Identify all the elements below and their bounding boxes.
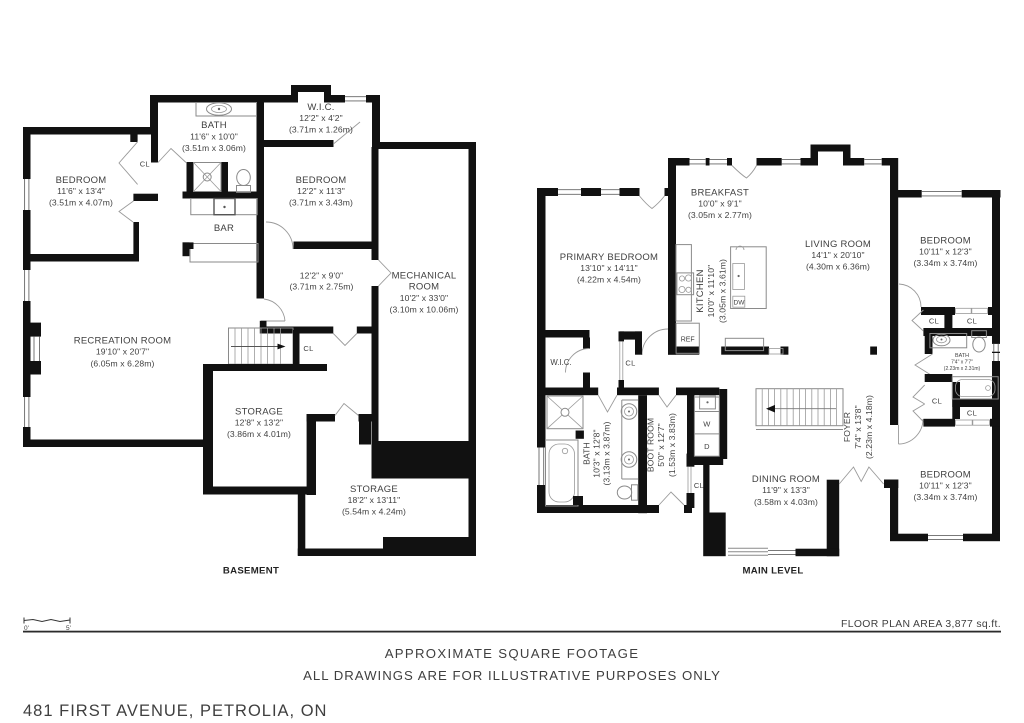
svg-text:10'11" x 12'3": 10'11" x 12'3"	[919, 247, 972, 257]
svg-text:7'4" x 7'7": 7'4" x 7'7"	[951, 360, 973, 366]
svg-text:PRIMARY BEDROOM: PRIMARY BEDROOM	[560, 252, 658, 263]
svg-text:BATH: BATH	[201, 120, 227, 131]
svg-text:STORAGE: STORAGE	[350, 484, 398, 495]
svg-text:(4.30m x 6.36m): (4.30m x 6.36m)	[806, 262, 870, 272]
svg-text:W: W	[703, 420, 711, 429]
svg-text:(3.58m x 4.03m): (3.58m x 4.03m)	[754, 497, 818, 507]
svg-text:481 FIRST AVENUE, PETROLIA, ON: 481 FIRST AVENUE, PETROLIA, ON	[23, 702, 327, 720]
svg-text:BAR: BAR	[214, 223, 234, 234]
svg-text:CL: CL	[303, 344, 313, 353]
svg-text:(4.22m x 4.54m): (4.22m x 4.54m)	[577, 275, 641, 285]
svg-text:19'10" x 20'7": 19'10" x 20'7"	[96, 347, 149, 357]
svg-text:CL: CL	[967, 409, 977, 418]
svg-text:BASEMENT: BASEMENT	[223, 566, 279, 577]
svg-text:MECHANICAL: MECHANICAL	[392, 271, 457, 282]
svg-text:(3.05m x 2.77m): (3.05m x 2.77m)	[688, 210, 752, 220]
svg-text:10'3" x 12'8": 10'3" x 12'8"	[592, 429, 602, 477]
svg-text:10'2" x 33'0": 10'2" x 33'0"	[400, 293, 448, 303]
svg-text:(3.13m x 3.87m): (3.13m x 3.87m)	[602, 421, 612, 485]
svg-text:DINING ROOM: DINING ROOM	[752, 474, 820, 485]
svg-text:RECREATION ROOM: RECREATION ROOM	[74, 336, 172, 347]
svg-text:7'4" x 13'8": 7'4" x 13'8"	[853, 405, 863, 449]
svg-text:ALL DRAWINGS ARE FOR ILLUSTRAT: ALL DRAWINGS ARE FOR ILLUSTRATIVE PURPOS…	[303, 668, 721, 683]
svg-text:10'0" x 11'10": 10'0" x 11'10"	[706, 265, 716, 318]
svg-text:12'8" x 13'2": 12'8" x 13'2"	[235, 418, 283, 428]
svg-text:BEDROOM: BEDROOM	[920, 236, 971, 247]
svg-text:BOOT ROOM: BOOT ROOM	[646, 418, 656, 472]
svg-text:KITCHEN: KITCHEN	[695, 269, 706, 312]
svg-text:14'1" x 20'10": 14'1" x 20'10"	[811, 250, 864, 260]
svg-text:11'6" x 13'4": 11'6" x 13'4"	[57, 186, 105, 196]
svg-text:12'2" x 11'3": 12'2" x 11'3"	[297, 186, 345, 196]
svg-text:(2.23m x 4.18m): (2.23m x 4.18m)	[864, 395, 874, 459]
svg-text:10'0" x 9'1": 10'0" x 9'1"	[698, 199, 742, 209]
svg-text:12'2" x 4'2": 12'2" x 4'2"	[299, 113, 343, 123]
svg-text:BEDROOM: BEDROOM	[920, 470, 971, 481]
svg-text:(1.53m x 3.83m): (1.53m x 3.83m)	[667, 413, 677, 477]
svg-text:(6.05m x 6.28m): (6.05m x 6.28m)	[90, 359, 154, 369]
svg-text:D: D	[704, 442, 710, 451]
svg-text:BREAKFAST: BREAKFAST	[691, 188, 749, 199]
svg-text:W.I.C.: W.I.C.	[307, 102, 334, 113]
svg-text:(3.10m x 10.06m): (3.10m x 10.06m)	[390, 305, 459, 315]
svg-text:(3.71m x 2.75m): (3.71m x 2.75m)	[289, 282, 353, 292]
svg-text:18'2" x 13'11": 18'2" x 13'11"	[348, 495, 401, 505]
svg-text:(5.54m x 4.24m): (5.54m x 4.24m)	[342, 507, 406, 517]
svg-text:BEDROOM: BEDROOM	[296, 175, 347, 186]
svg-text:(3.34m x 3.74m): (3.34m x 3.74m)	[913, 258, 977, 268]
svg-text:BATH: BATH	[955, 353, 969, 359]
svg-text:(3.34m x 3.74m): (3.34m x 3.74m)	[913, 492, 977, 502]
svg-text:LIVING ROOM: LIVING ROOM	[805, 239, 871, 250]
svg-text:CL: CL	[932, 397, 942, 406]
svg-text:CL: CL	[625, 359, 635, 368]
svg-text:(3.51m x 3.06m): (3.51m x 3.06m)	[182, 143, 246, 153]
svg-text:BATH: BATH	[582, 442, 592, 465]
svg-text:12'2" x 9'0": 12'2" x 9'0"	[300, 271, 344, 281]
svg-text:CL: CL	[929, 317, 939, 326]
svg-text:(3.05m x 3.61m): (3.05m x 3.61m)	[718, 259, 728, 323]
svg-text:BEDROOM: BEDROOM	[56, 175, 107, 186]
svg-text:13'10" x 14'11": 13'10" x 14'11"	[580, 263, 638, 273]
svg-text:FLOOR PLAN AREA 3,877 sq.ft.: FLOOR PLAN AREA 3,877 sq.ft.	[841, 619, 1001, 630]
svg-text:CL: CL	[140, 160, 150, 169]
svg-text:(3.86m x 4.01m): (3.86m x 4.01m)	[227, 429, 291, 439]
svg-text:FOYER: FOYER	[842, 412, 852, 442]
svg-text:(2.23m x 2.31m): (2.23m x 2.31m)	[944, 366, 981, 372]
svg-text:11'9" x 13'3": 11'9" x 13'3"	[762, 485, 810, 495]
svg-text:APPROXIMATE SQUARE FOOTAGE: APPROXIMATE SQUARE FOOTAGE	[385, 646, 640, 661]
svg-text:11'6" x 10'0": 11'6" x 10'0"	[190, 132, 238, 142]
svg-text:MAIN LEVEL: MAIN LEVEL	[742, 566, 803, 577]
svg-text:W.I.C.: W.I.C.	[550, 358, 571, 367]
svg-text:(3.71m x 1.26m): (3.71m x 1.26m)	[289, 125, 353, 135]
svg-text:(3.51m x 4.07m): (3.51m x 4.07m)	[49, 198, 113, 208]
svg-text:CL: CL	[694, 481, 704, 490]
svg-text:(3.71m x 3.43m): (3.71m x 3.43m)	[289, 198, 353, 208]
svg-text:CL: CL	[967, 317, 977, 326]
svg-text:REF: REF	[681, 337, 695, 344]
svg-text:STORAGE: STORAGE	[235, 407, 283, 418]
svg-text:5'0" x 12'7": 5'0" x 12'7"	[656, 423, 666, 467]
svg-text:ROOM: ROOM	[409, 282, 440, 293]
svg-text:10'11" x 12'3": 10'11" x 12'3"	[919, 481, 972, 491]
svg-text:DW: DW	[734, 300, 746, 307]
